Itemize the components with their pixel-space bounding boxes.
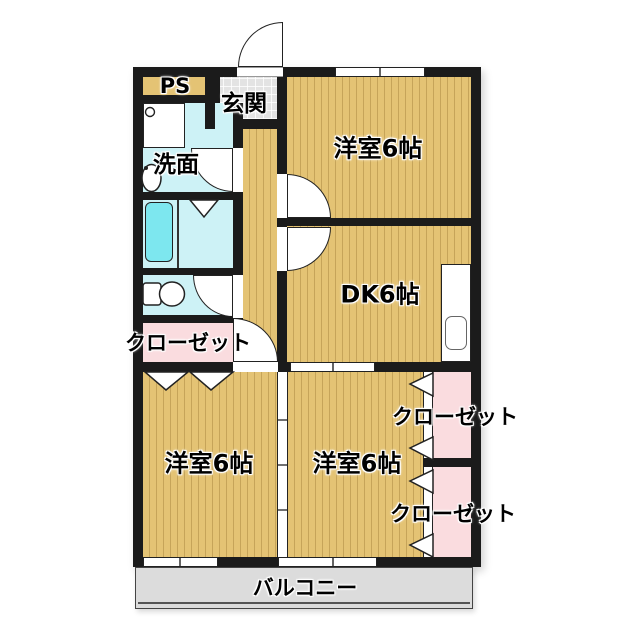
closet-rl-label: クローゼット [390,498,516,528]
sliding-door-dk [290,362,375,372]
wall-wash-bath [133,192,233,200]
washing-machine-icon [143,103,185,148]
doorway-dk [277,227,287,271]
room-br-label: 洋室6帖 [313,444,402,479]
window-bottom-left [143,557,218,567]
bathroom-divider [177,200,179,268]
closet-left-label: クローゼット [125,327,251,357]
dk-label: DK6帖 [340,275,419,310]
entrance-label: 玄関 [221,84,267,118]
floor-plan: PS 玄関 洗面 洋室6帖 DK6帖 クローゼット 洋室6帖 洋室6帖 クローゼ… [0,0,640,639]
closet-ru-label: クローゼット [392,401,518,431]
partition-bottom-rooms [277,372,288,557]
wall-toilet-closet [133,315,233,323]
room-bl-label: 洋室6帖 [165,444,254,479]
doorway-washroom [233,148,243,192]
wall-bath-toilet [133,268,233,275]
wall-closet-mid [423,458,471,467]
kitchen-sink-icon [445,316,467,350]
ps-label: PS [160,74,191,98]
balcony-label: バルコニー [253,572,358,602]
washroom-label: 洗面 [153,145,199,179]
entrance-threshold [237,67,283,77]
doorway-room-top [277,174,287,218]
wall-entrance-left [205,67,215,129]
bathtub-icon [145,202,173,262]
balcony-rail-line [138,602,470,604]
entrance-door-arc [238,22,283,67]
window-bottom-right [278,557,377,567]
wall-room-dk [277,218,471,226]
window-top [335,67,425,77]
doorway-toilet [233,275,243,318]
room-top-label: 洋室6帖 [334,129,423,164]
wall-east [471,67,481,567]
doorway-hall-south [233,362,278,372]
